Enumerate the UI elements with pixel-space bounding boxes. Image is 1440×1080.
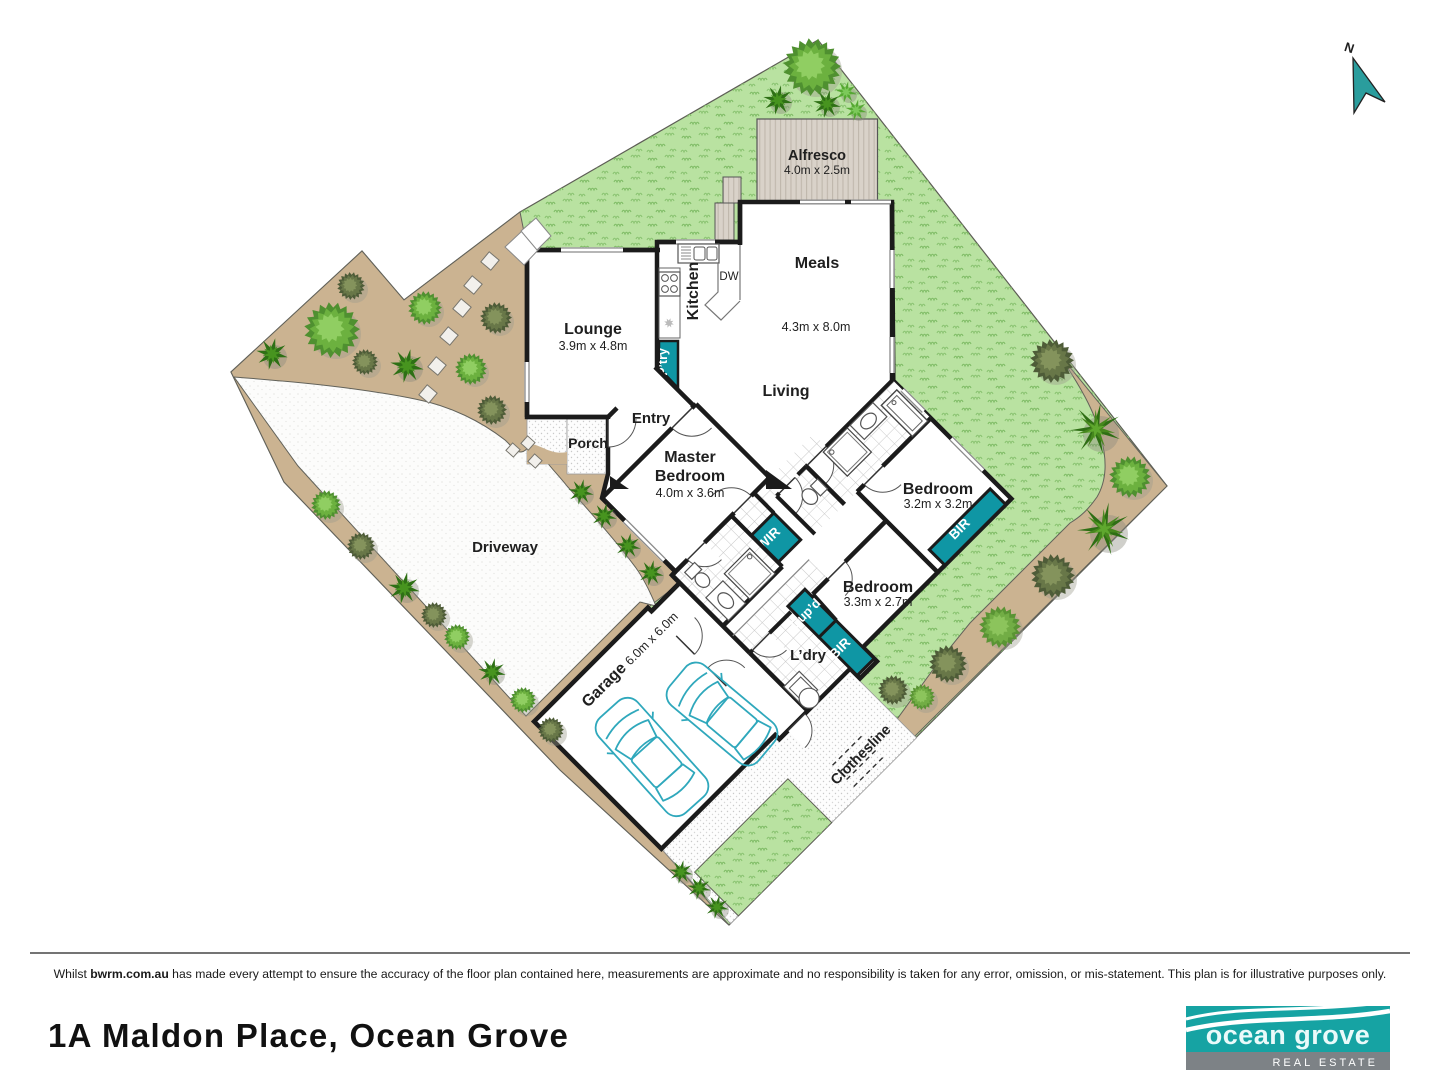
svg-text:Lounge: Lounge	[564, 321, 622, 338]
svg-text:4.0m x 2.5m: 4.0m x 2.5m	[784, 163, 850, 177]
svg-text:DW: DW	[719, 271, 738, 283]
svg-text:ocean grove: ocean grove	[1206, 1020, 1371, 1050]
svg-text:Kitchen: Kitchen	[685, 262, 702, 321]
svg-text:Meals: Meals	[795, 255, 840, 272]
svg-text:L’dry: L’dry	[790, 647, 827, 664]
svg-text:Driveway: Driveway	[472, 539, 539, 556]
svg-text:Bedroom: Bedroom	[655, 468, 725, 485]
svg-text:3.2m x 3.2m: 3.2m x 3.2m	[904, 497, 973, 511]
svg-text:Whilst bwrm.com.au has made ev: Whilst bwrm.com.au has made every attemp…	[54, 967, 1387, 981]
svg-text:Living: Living	[762, 383, 809, 400]
svg-text:Porch: Porch	[568, 435, 608, 451]
svg-text:Entry: Entry	[632, 410, 671, 427]
svg-text:3.9m x 4.8m: 3.9m x 4.8m	[559, 339, 628, 353]
svg-text:Bedroom: Bedroom	[843, 579, 913, 596]
svg-text:4.0m x 3.6m: 4.0m x 3.6m	[656, 486, 725, 500]
svg-text:N: N	[1343, 39, 1357, 56]
svg-text:3.3m x 2.7m: 3.3m x 2.7m	[844, 595, 913, 609]
svg-text:4.3m x 8.0m: 4.3m x 8.0m	[782, 320, 851, 334]
svg-text:REAL ESTATE: REAL ESTATE	[1272, 1057, 1378, 1069]
svg-text:1A Maldon Place, Ocean Grove: 1A Maldon Place, Ocean Grove	[48, 1017, 569, 1054]
svg-text:Alfresco: Alfresco	[788, 148, 846, 164]
svg-text:Bedroom: Bedroom	[903, 481, 973, 498]
svg-text:Master: Master	[664, 449, 716, 466]
